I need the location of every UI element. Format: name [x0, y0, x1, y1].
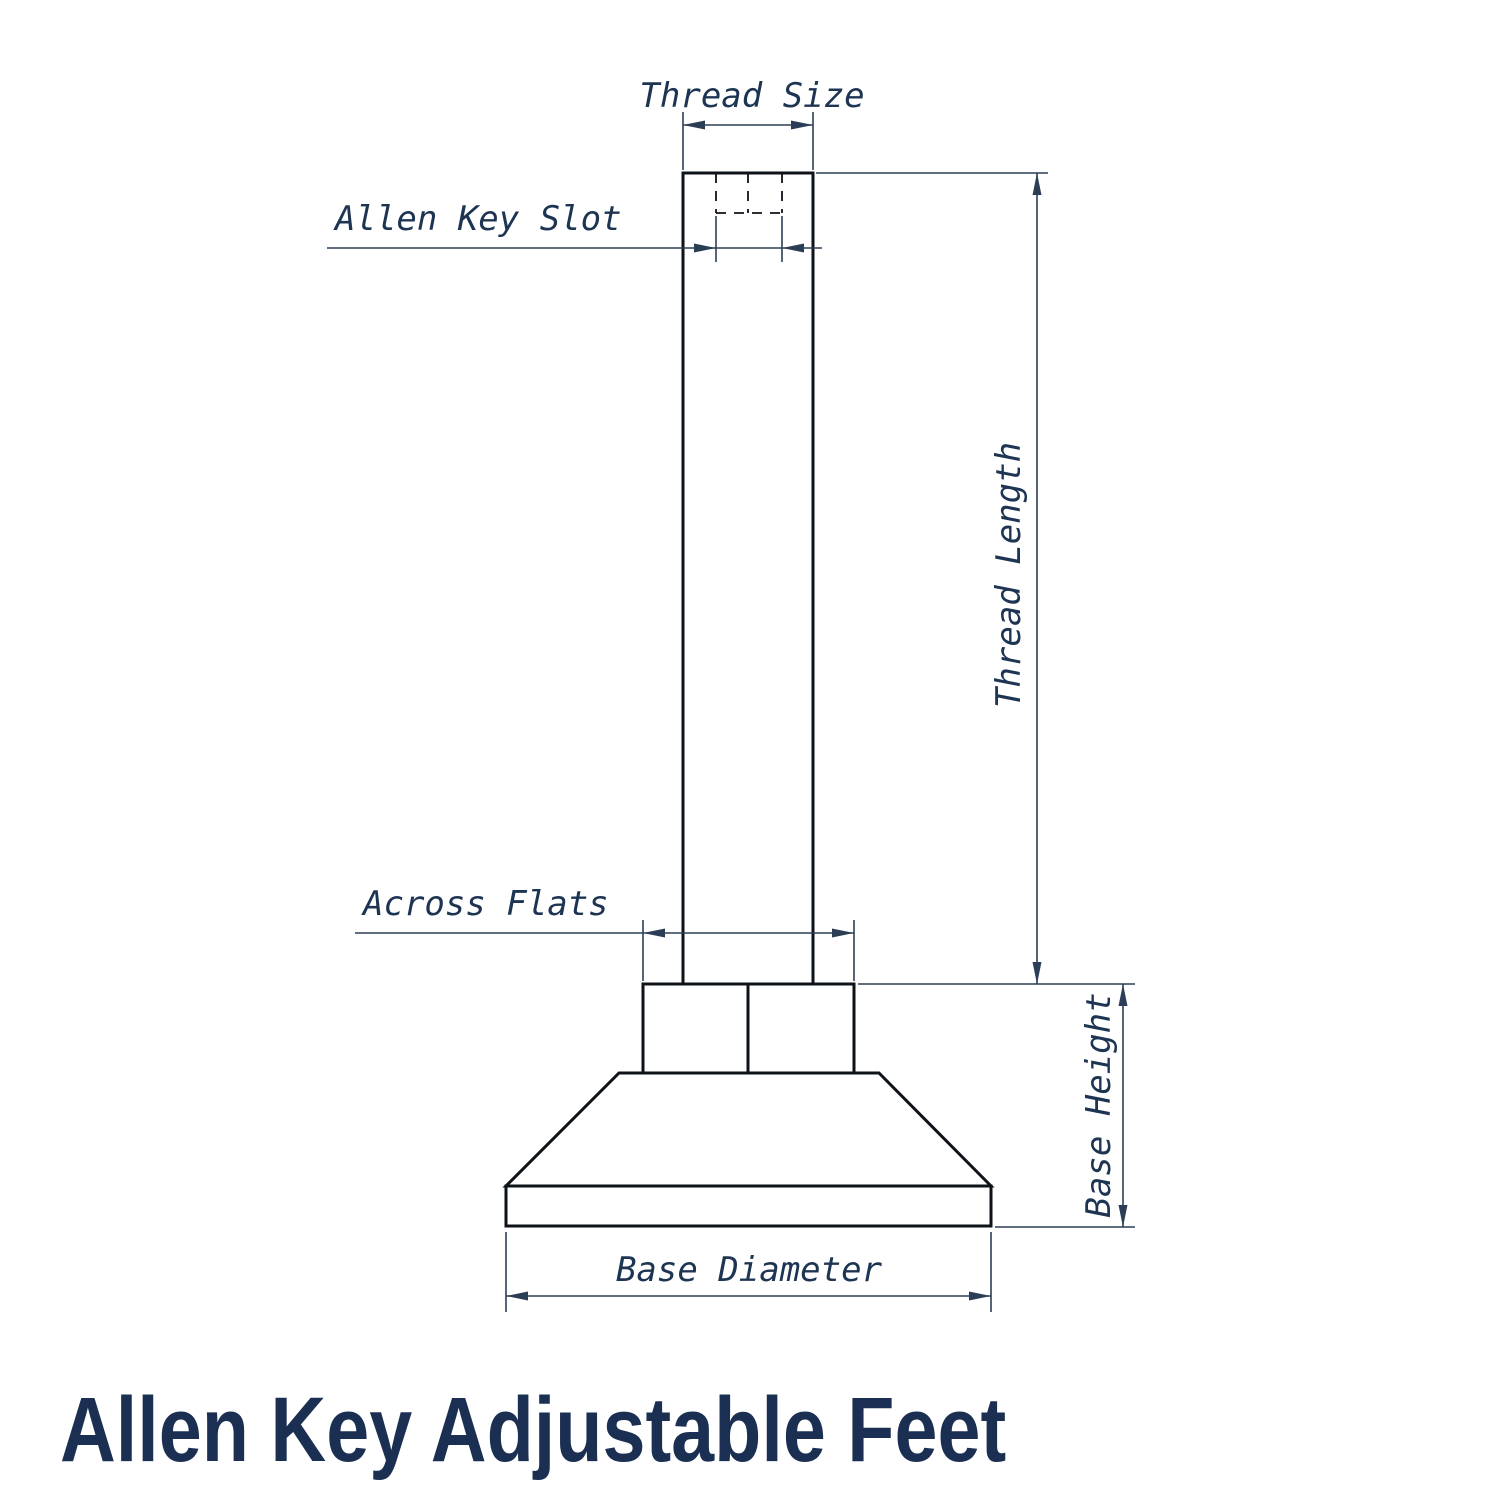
- across-flats-dimension: Across Flats: [355, 884, 854, 981]
- base-cone-outline: [506, 1073, 991, 1186]
- arrowhead-right-icon: [791, 121, 813, 130]
- base-plate-outline: [506, 1186, 991, 1226]
- arrowhead-down-icon: [1033, 962, 1042, 984]
- arrowhead-left-icon: [506, 1292, 528, 1301]
- allen-key-slot-dimension: Allen Key Slot: [327, 199, 822, 262]
- drawing-canvas: Thread Size Allen Key Slot Thread Length: [0, 0, 1500, 1500]
- page-title: Allen Key Adjustable Feet: [60, 1384, 1006, 1476]
- arrowhead-right-icon: [969, 1292, 991, 1301]
- foot-outline: [506, 173, 991, 1226]
- arrowhead-right-icon: [832, 929, 854, 938]
- arrowhead-up-icon: [1119, 984, 1128, 1006]
- threaded-stem-outline: [683, 173, 813, 984]
- thread-length-label: Thread Length: [989, 442, 1029, 708]
- arrowhead-left-icon: [683, 121, 705, 130]
- thread-size-label: Thread Size: [639, 76, 864, 116]
- arrowhead-right-icon: [694, 244, 716, 253]
- base-diameter-label: Base Diameter: [616, 1250, 883, 1290]
- thread-size-dimension: Thread Size: [639, 76, 864, 170]
- arrowhead-left-icon: [782, 244, 804, 253]
- allen-slot-hidden-lines: [716, 173, 782, 213]
- arrowhead-up-icon: [1033, 173, 1042, 195]
- across-flats-label: Across Flats: [361, 884, 609, 924]
- arrowhead-down-icon: [1119, 1205, 1128, 1227]
- technical-drawing: Thread Size Allen Key Slot Thread Length: [0, 0, 1500, 1500]
- base-diameter-dimension: Base Diameter: [506, 1232, 991, 1312]
- arrowhead-left-icon: [643, 929, 665, 938]
- allen-key-slot-label: Allen Key Slot: [333, 199, 622, 239]
- base-height-dimension: Base Height: [858, 984, 1135, 1227]
- thread-length-dimension: Thread Length: [816, 173, 1048, 984]
- base-height-label: Base Height: [1079, 992, 1119, 1217]
